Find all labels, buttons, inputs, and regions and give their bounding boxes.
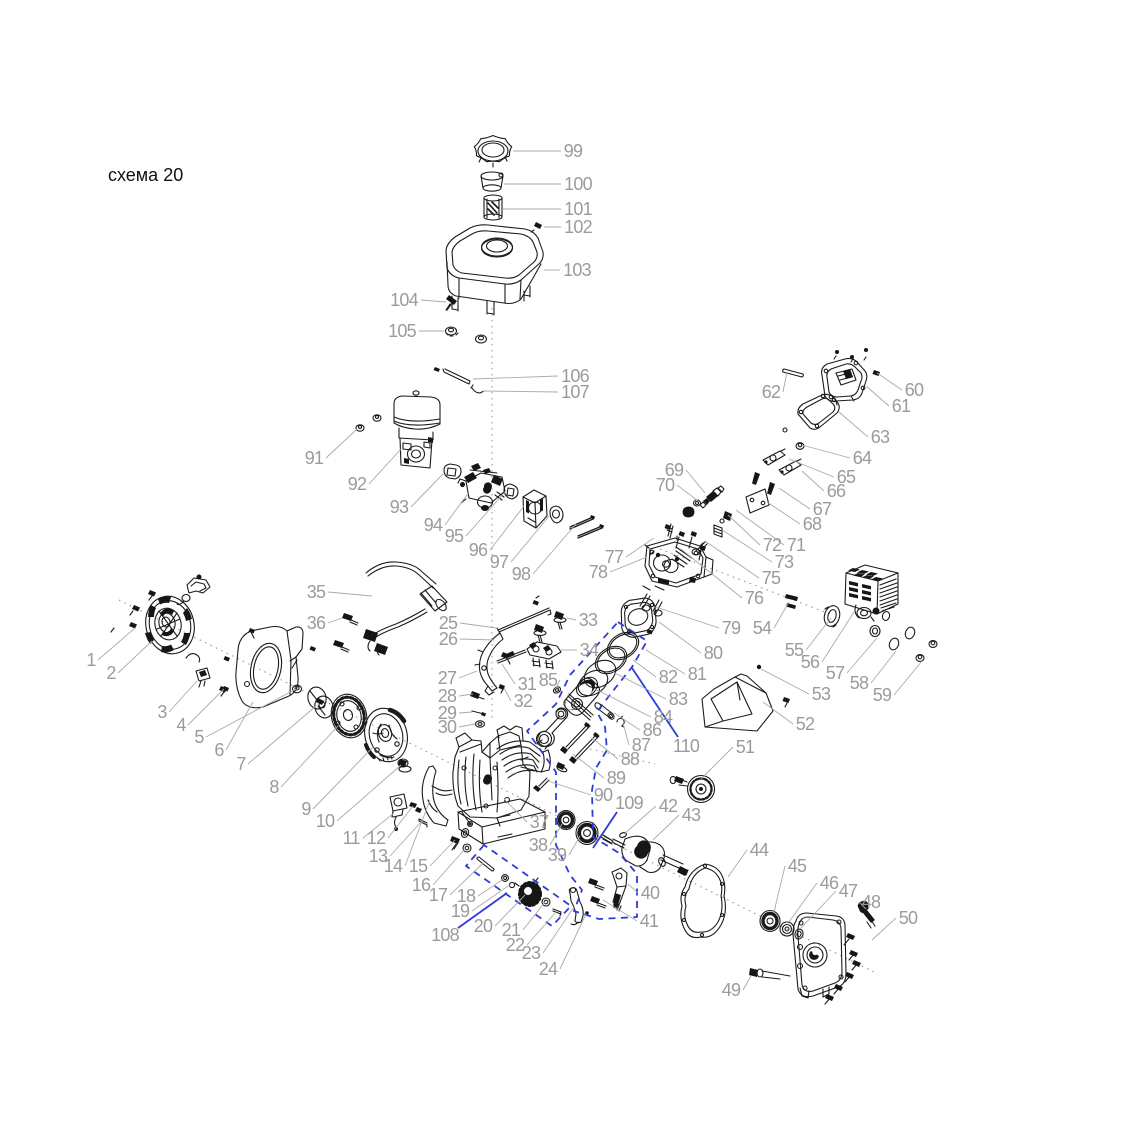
svg-text:схема 20: схема 20 [108, 165, 183, 185]
svg-text:36: 36 [307, 613, 326, 633]
svg-text:1: 1 [86, 650, 96, 670]
svg-text:52: 52 [796, 714, 815, 734]
svg-text:4: 4 [176, 715, 186, 735]
svg-text:76: 76 [745, 588, 764, 608]
svg-text:37: 37 [530, 812, 549, 832]
svg-text:43: 43 [682, 805, 701, 825]
svg-text:17: 17 [429, 885, 448, 905]
svg-text:58: 58 [850, 673, 869, 693]
svg-text:88: 88 [621, 749, 640, 769]
svg-text:62: 62 [762, 382, 781, 402]
svg-text:82: 82 [659, 667, 678, 687]
svg-text:78: 78 [589, 562, 608, 582]
svg-text:90: 90 [594, 785, 613, 805]
svg-text:8: 8 [269, 777, 279, 797]
svg-text:5: 5 [194, 727, 204, 747]
svg-text:42: 42 [659, 796, 678, 816]
svg-text:20: 20 [474, 916, 493, 936]
svg-text:94: 94 [424, 515, 443, 535]
svg-text:50: 50 [899, 908, 918, 928]
svg-text:108: 108 [431, 925, 459, 945]
svg-text:107: 107 [561, 382, 589, 402]
svg-text:99: 99 [564, 141, 583, 161]
svg-text:7: 7 [236, 754, 246, 774]
svg-text:39: 39 [548, 845, 567, 865]
svg-text:57: 57 [826, 663, 845, 683]
svg-text:100: 100 [564, 174, 592, 194]
svg-text:49: 49 [722, 980, 741, 1000]
svg-text:12: 12 [367, 828, 386, 848]
svg-text:47: 47 [839, 881, 858, 901]
svg-text:35: 35 [307, 582, 326, 602]
svg-text:80: 80 [704, 643, 723, 663]
svg-text:34: 34 [580, 640, 599, 660]
svg-text:33: 33 [579, 610, 598, 630]
svg-text:83: 83 [669, 689, 688, 709]
svg-text:11: 11 [342, 828, 360, 848]
svg-text:44: 44 [750, 840, 769, 860]
svg-text:10: 10 [316, 811, 335, 831]
svg-text:41: 41 [640, 911, 659, 931]
svg-text:63: 63 [871, 427, 890, 447]
svg-text:19: 19 [451, 901, 470, 921]
svg-text:27: 27 [438, 668, 457, 688]
svg-text:93: 93 [390, 497, 409, 517]
svg-text:103: 103 [563, 260, 591, 280]
svg-text:32: 32 [514, 691, 533, 711]
svg-text:96: 96 [469, 540, 488, 560]
svg-text:101: 101 [564, 199, 592, 219]
svg-text:15: 15 [409, 856, 428, 876]
svg-text:38: 38 [529, 835, 548, 855]
svg-text:48: 48 [862, 892, 881, 912]
svg-text:68: 68 [803, 514, 822, 534]
svg-text:53: 53 [812, 684, 831, 704]
svg-text:56: 56 [801, 652, 820, 672]
svg-text:61: 61 [892, 396, 911, 416]
svg-text:92: 92 [348, 474, 367, 494]
svg-text:54: 54 [753, 618, 772, 638]
svg-text:6: 6 [214, 740, 224, 760]
svg-text:75: 75 [762, 568, 781, 588]
svg-text:2: 2 [106, 663, 116, 683]
svg-text:26: 26 [439, 629, 458, 649]
svg-text:64: 64 [853, 448, 872, 468]
svg-text:104: 104 [390, 290, 418, 310]
svg-text:85: 85 [539, 670, 558, 690]
svg-text:59: 59 [873, 685, 892, 705]
svg-text:77: 77 [605, 547, 624, 567]
svg-text:109: 109 [615, 793, 643, 813]
svg-text:110: 110 [673, 736, 700, 756]
svg-text:40: 40 [641, 883, 660, 903]
svg-text:3: 3 [157, 702, 167, 722]
svg-text:81: 81 [688, 664, 707, 684]
svg-text:95: 95 [445, 526, 464, 546]
svg-text:9: 9 [301, 799, 311, 819]
svg-text:46: 46 [820, 873, 839, 893]
svg-text:102: 102 [564, 217, 592, 237]
svg-text:30: 30 [438, 717, 457, 737]
svg-text:24: 24 [539, 959, 558, 979]
svg-text:98: 98 [512, 564, 531, 584]
svg-text:45: 45 [788, 856, 807, 876]
svg-text:51: 51 [736, 737, 755, 757]
svg-text:105: 105 [388, 321, 416, 341]
svg-text:79: 79 [722, 618, 741, 638]
svg-text:14: 14 [384, 856, 403, 876]
svg-text:91: 91 [305, 448, 324, 468]
svg-text:70: 70 [656, 475, 675, 495]
svg-text:66: 66 [827, 481, 846, 501]
svg-text:97: 97 [490, 552, 509, 572]
